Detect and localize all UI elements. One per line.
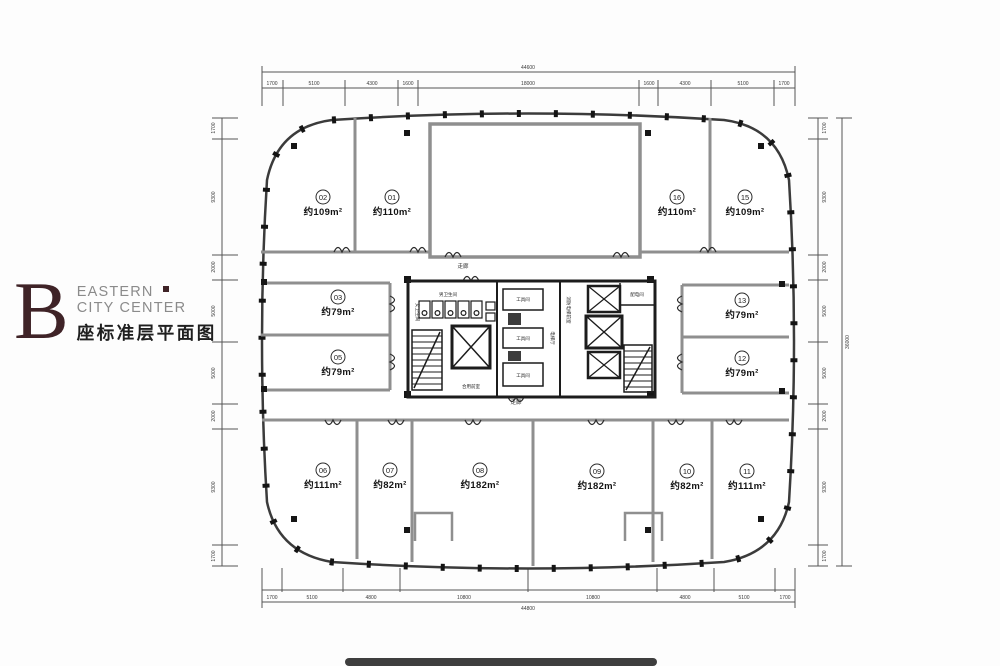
dim-label: 5100 [738, 595, 749, 601]
dim-label: 5000 [822, 305, 828, 316]
unit-number: 13 [738, 296, 746, 305]
unit-number: 02 [319, 193, 327, 202]
unit-area: 约79m² [321, 306, 354, 318]
dim-label: 1600 [402, 81, 413, 87]
dim-label: 5100 [306, 595, 317, 601]
dim-label: 9300 [211, 481, 217, 492]
unit-area: 约82m² [373, 479, 406, 491]
dim-label: 4800 [365, 595, 376, 601]
dim-label: 10800 [457, 595, 471, 601]
dim-label: 1700 [822, 550, 828, 561]
dim-left [212, 118, 238, 566]
dim-label: 1700 [778, 81, 789, 87]
womens-wc-label: 女卫生间 [414, 303, 421, 321]
tool-room-label: 工具间 [516, 372, 530, 379]
unit-area: 约109m² [726, 206, 765, 218]
dim-top-total: 44600 [521, 65, 535, 71]
dim-label: 5000 [822, 367, 828, 378]
unit-area: 约82m² [670, 480, 703, 492]
dim-label: 1700 [266, 595, 277, 601]
unit-number: 16 [673, 193, 681, 202]
dim-right-total: 36000 [845, 335, 851, 349]
unit-number: 15 [741, 193, 749, 202]
dim-label: 1600 [643, 81, 654, 87]
media-progress-bar[interactable] [345, 658, 657, 666]
dim-label: 10800 [586, 595, 600, 601]
dim-label: 1700 [779, 595, 790, 601]
unit-number: 07 [386, 466, 394, 475]
tool-room-label: 工具间 [516, 296, 530, 303]
shared-lobby-label: 合用前室 [462, 383, 480, 390]
dim-bottom [262, 568, 795, 608]
unit-area: 约182m² [461, 479, 500, 491]
floorplan-page: B EASTERN CITY CENTER 座标准层平面图 44600 1700… [0, 0, 1000, 666]
dim-label: 2000 [822, 261, 828, 272]
unit-area: 约111m² [304, 479, 342, 491]
unit-number: 05 [334, 353, 342, 362]
unit-area: 约79m² [725, 367, 758, 379]
dim-label: 5100 [737, 81, 748, 87]
dim-label: 5100 [308, 81, 319, 87]
unit-area: 约111m² [728, 480, 766, 492]
unit-area: 约79m² [725, 309, 758, 321]
shaft [508, 313, 521, 325]
unit-area: 约110m² [373, 206, 411, 218]
unit-area: 约110m² [658, 206, 696, 218]
unit-area: 约182m² [578, 480, 617, 492]
tool-room-label: 工具间 [516, 335, 530, 342]
unit-number: 11 [743, 467, 751, 476]
dim-label: 2000 [822, 410, 828, 421]
dim-label: 1700 [822, 122, 828, 133]
corridor-bottom-label: 走廊 [510, 398, 522, 406]
dim-label: 18000 [521, 81, 535, 87]
dim-label: 1700 [266, 81, 277, 87]
dim-label: 5000 [211, 305, 217, 316]
unit-area: 约79m² [321, 366, 354, 378]
dim-label: 9300 [822, 481, 828, 492]
fire-elevator-lobby-label: 消防电梯前室 [565, 297, 572, 324]
dim-label: 1700 [211, 550, 217, 561]
building-outline [262, 114, 794, 569]
dim-label: 1700 [211, 122, 217, 133]
elevator-hall-label: 电梯厅 [549, 331, 556, 345]
unit-number: 10 [683, 467, 691, 476]
dim-label: 4300 [679, 81, 690, 87]
power-room-label: 配电间 [630, 291, 644, 298]
dim-label: 5000 [211, 367, 217, 378]
unit-number: 08 [476, 466, 484, 475]
unit-number: 12 [738, 354, 746, 363]
unit-number: 09 [593, 467, 601, 476]
unit-area: 约109m² [304, 206, 343, 218]
dim-label: 4800 [679, 595, 690, 601]
floor-plan: 44600 1700 5100 4300 1600 18000 1600 430… [0, 0, 1000, 666]
dim-label: 2000 [211, 410, 217, 421]
dim-label: 4300 [366, 81, 377, 87]
dim-label: 9300 [211, 191, 217, 202]
dim-label: 9300 [822, 191, 828, 202]
shaft [508, 351, 521, 361]
unit-number: 06 [319, 466, 327, 475]
unit-number: 01 [388, 193, 396, 202]
mens-wc-label: 男卫生间 [439, 291, 457, 298]
dim-label: 2000 [211, 261, 217, 272]
corridor-top-label: 走廊 [457, 262, 469, 270]
dim-bottom-total: 44800 [521, 606, 535, 612]
unit-number: 03 [334, 293, 342, 302]
